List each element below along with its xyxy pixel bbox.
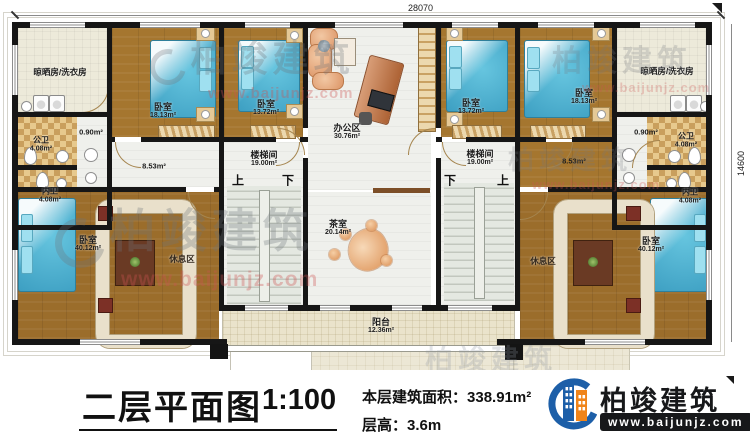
wall — [214, 187, 224, 192]
tea-room-beam — [373, 188, 430, 193]
window — [452, 22, 498, 28]
room-label-tea: 茶室 20.14m² — [325, 219, 351, 237]
side-table — [98, 298, 113, 313]
window — [538, 22, 594, 28]
room-label-rest-left: 休息区 — [169, 255, 195, 265]
wall — [350, 305, 392, 311]
nightstand — [196, 107, 215, 122]
wall — [466, 137, 546, 142]
washing-machine — [670, 95, 686, 112]
floor-height-value: 3.6m — [407, 417, 441, 434]
dimension-line-right — [731, 24, 732, 342]
side-table — [626, 206, 641, 221]
wall — [422, 305, 448, 311]
coffee-table — [573, 240, 613, 286]
tea-stool — [329, 249, 340, 260]
wall — [612, 112, 712, 117]
wall — [141, 137, 276, 142]
room-label-gongwei-left: 公卫 4.08m² — [30, 137, 52, 154]
wall — [612, 22, 617, 230]
area-label-hall-left: 8.53m² — [142, 162, 166, 171]
room-label-balcony: 阳台 12.36m² — [368, 317, 394, 335]
window — [245, 22, 290, 28]
nightstand — [446, 26, 463, 41]
floor-area-value: 338.91m² — [467, 389, 531, 406]
window — [140, 22, 200, 28]
room-label-laundry-right: 晾晒房/洗衣房 — [640, 67, 693, 77]
wall — [300, 137, 308, 142]
window — [585, 339, 645, 345]
room-label-bedroom13-right: 卧室 13.72m² — [458, 98, 484, 116]
window — [640, 22, 695, 28]
side-table — [626, 298, 641, 313]
bed — [18, 198, 76, 292]
wall — [572, 137, 617, 142]
vanity-sink — [623, 172, 635, 184]
nightstand — [592, 107, 610, 122]
balcony-rail — [227, 345, 505, 352]
window — [12, 250, 18, 300]
coffee-table — [115, 240, 155, 286]
company-logo-url: www.baijunjz.com — [600, 413, 750, 431]
bathroom-sink — [56, 150, 69, 163]
nightstand — [286, 104, 303, 119]
stair-rail-right — [474, 187, 485, 299]
pillow — [694, 246, 706, 274]
toilet — [688, 147, 701, 165]
wall — [303, 158, 308, 310]
pillow — [449, 46, 462, 68]
stair-up-label: 上 — [232, 172, 244, 189]
area-label-hall-right: 8.53m² — [562, 157, 586, 166]
pillow — [199, 47, 212, 69]
footer-bar: 二层平面图 1:100 本层建筑面积：338.91m² 层高：3.6m 柏竣建筑… — [0, 370, 750, 444]
vanity-sink — [84, 148, 98, 162]
floor-height-label: 层高： — [362, 417, 407, 434]
wall — [12, 165, 77, 170]
window — [706, 250, 712, 300]
window — [448, 305, 492, 311]
pillar — [210, 344, 228, 359]
office-sofa — [312, 72, 344, 90]
room-label-neiwei-right: 内卫 4.08m² — [679, 189, 701, 206]
nightstand — [286, 28, 303, 43]
office-side-table — [334, 38, 356, 66]
room-label-laundry-left: 晾晒房/洗衣房 — [33, 68, 86, 78]
floor-height-line: 层高：3.6m — [362, 414, 441, 435]
dimension-line-top — [14, 15, 722, 16]
company-logo-icon — [543, 378, 597, 436]
area-label-closet-right: 0.90m² — [634, 128, 658, 137]
washing-machine — [49, 95, 65, 112]
stair-down-label: 下 — [282, 172, 294, 189]
pillow — [21, 246, 33, 274]
pillow — [527, 70, 540, 92]
dimension-right-value: 14600 — [736, 151, 746, 176]
wall — [303, 22, 308, 128]
bathroom-sink — [668, 150, 681, 163]
window — [30, 22, 85, 28]
window — [320, 305, 350, 311]
window — [245, 305, 288, 311]
room-label-bedroom40-right: 卧室 40.12m² — [638, 236, 664, 254]
pillow — [527, 47, 540, 69]
corner-marker-icon — [726, 376, 734, 384]
window — [706, 45, 712, 95]
title-underline — [79, 429, 337, 431]
wall — [288, 305, 320, 311]
room-label-stair-right: 楼梯间 19.00m² — [466, 149, 493, 167]
wall — [515, 22, 520, 310]
washing-machine — [33, 95, 49, 112]
window — [392, 305, 422, 311]
wall — [436, 158, 441, 310]
room-label-bedroom18-left: 卧室 18.13m² — [150, 102, 176, 120]
wall — [12, 112, 112, 117]
window — [335, 22, 403, 28]
room-label-bedroom13-left: 卧室 13.72m² — [253, 99, 279, 117]
vanity-sink — [85, 172, 97, 184]
office-chair — [359, 112, 372, 125]
room-label-rest-right: 休息区 — [530, 257, 556, 267]
wall — [436, 137, 442, 142]
corner-marker-icon — [712, 3, 722, 13]
wall — [107, 22, 112, 230]
wall — [107, 137, 115, 142]
pillow — [449, 68, 462, 90]
wall — [219, 22, 224, 310]
room-label-stair-left: 楼梯间 19.00m² — [250, 150, 277, 168]
room-label-bedroom18-right: 卧室 18.13m² — [571, 88, 597, 106]
room-label-bedroom40-left: 卧室 40.12m² — [75, 235, 101, 253]
nightstand — [592, 26, 610, 41]
room-label-gongwei-right: 公卫 4.08m² — [675, 133, 697, 150]
wall — [436, 22, 441, 128]
wall — [515, 187, 520, 192]
window — [12, 45, 18, 95]
window — [80, 339, 140, 345]
office-round-table — [318, 40, 330, 52]
floor-plan-page: 晾晒房/洗衣房 晾晒房/洗衣房 卧室 18.13m² 卧室 13.72m² 卧室… — [0, 0, 750, 444]
plan-title: 二层平面图 — [82, 380, 262, 429]
wall — [12, 225, 112, 230]
floor-area-line: 本层建筑面积：338.91m² — [362, 386, 531, 407]
wall — [492, 305, 520, 311]
laundry-sink — [21, 101, 32, 112]
wall — [647, 165, 712, 170]
wall — [219, 305, 245, 311]
floor-area-label: 本层建筑面积： — [362, 389, 467, 406]
dimension-top-value: 28070 — [408, 3, 433, 13]
shelf-ladder — [418, 26, 436, 132]
pillow — [241, 68, 254, 90]
pillow — [199, 70, 212, 92]
tea-stool — [381, 255, 392, 266]
pillar — [505, 344, 523, 360]
room-label-neiwei-left: 内卫 4.08m² — [39, 188, 61, 205]
area-label-closet-left: 0.90m² — [79, 128, 103, 137]
stair-down-label: 下 — [444, 172, 456, 189]
wall — [612, 225, 712, 230]
pillow — [241, 46, 254, 68]
plan-scale: 1:100 — [262, 384, 336, 417]
room-label-office: 办公区 30.76m² — [333, 123, 360, 141]
tea-stool — [366, 220, 377, 231]
stair-up-label: 上 — [497, 172, 509, 189]
stair-rail-left — [259, 190, 270, 302]
nightstand — [196, 26, 215, 41]
